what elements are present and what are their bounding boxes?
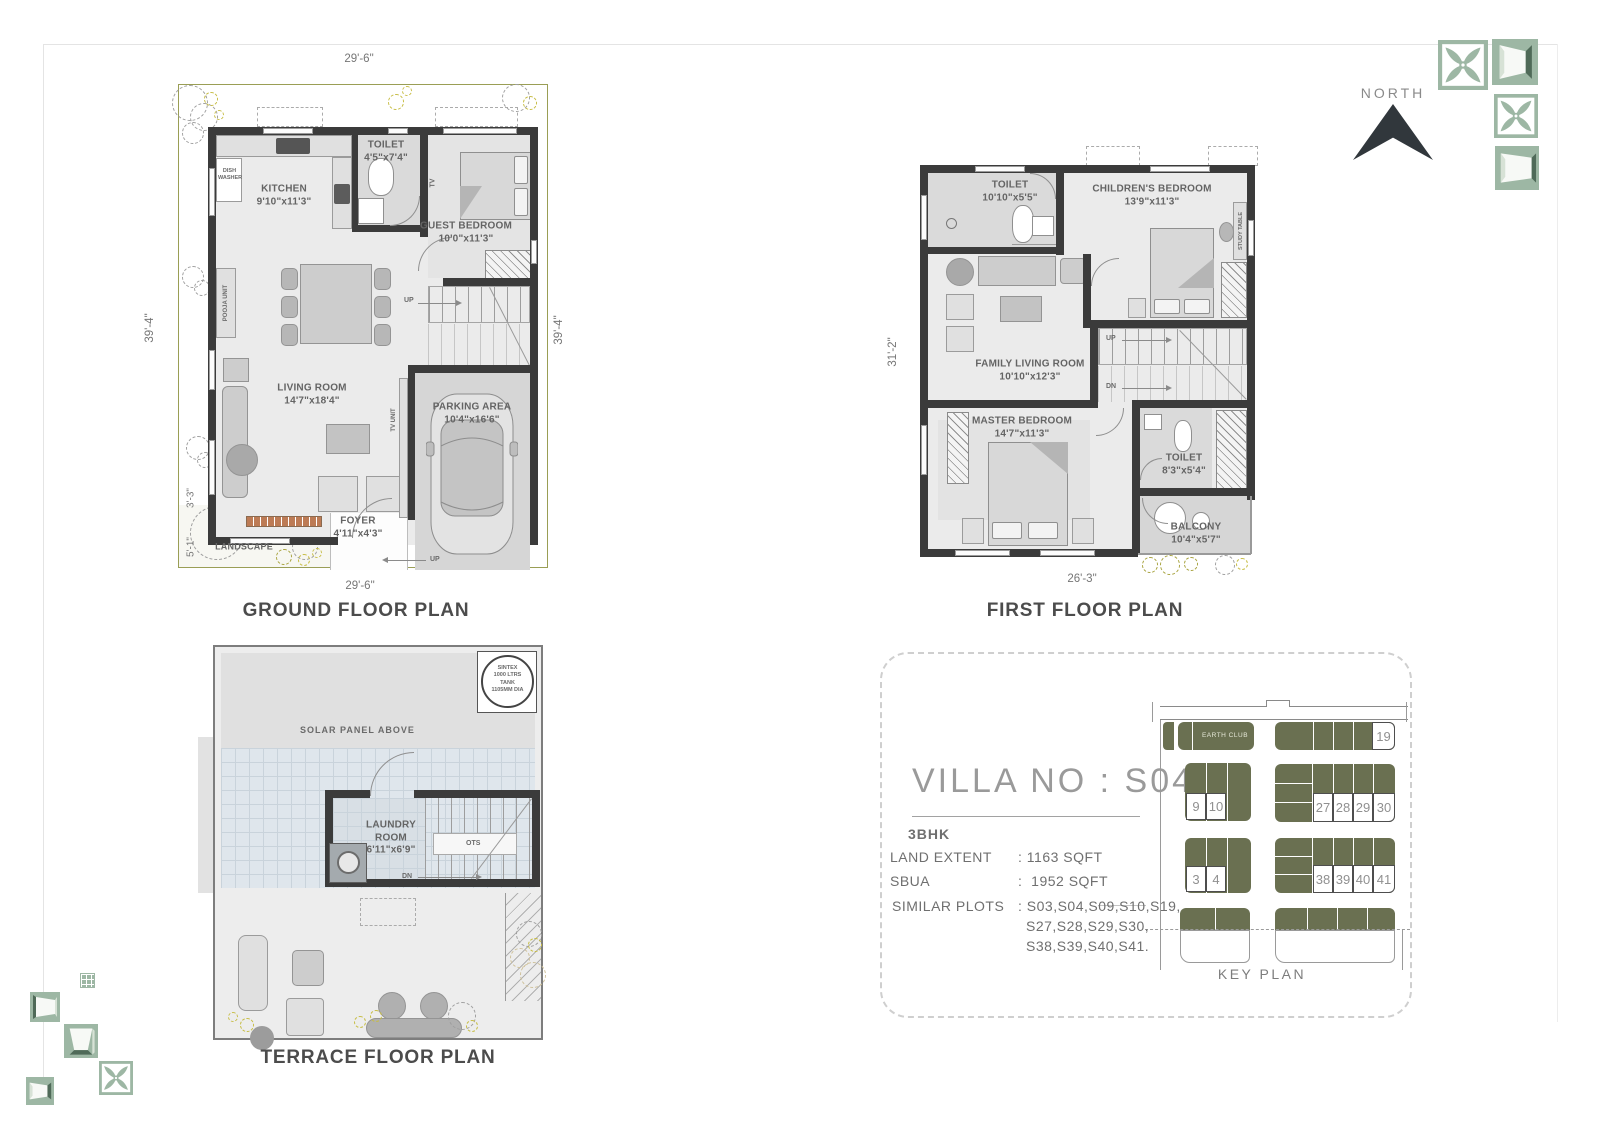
plot-divider xyxy=(1313,722,1314,750)
plot-divider xyxy=(1373,764,1374,793)
window xyxy=(1040,550,1095,556)
room-name: LIVING ROOM xyxy=(277,383,346,396)
dimension: 31'-2" xyxy=(887,337,899,366)
plot-divider xyxy=(1227,838,1228,893)
plot-divider xyxy=(1307,908,1308,930)
stairs xyxy=(428,286,530,323)
ground-floor-title: GROUND FLOOR PLAN xyxy=(243,600,470,622)
room-size: 6'11"x6'9" xyxy=(366,844,416,857)
washbasin xyxy=(1032,216,1054,236)
stairs xyxy=(1098,328,1247,365)
dn-label: DN xyxy=(1106,383,1116,390)
plot-divider xyxy=(1275,856,1312,857)
plot-block: 38 39 40 41 xyxy=(1275,838,1395,893)
earth-club-block: EARTH CLUB xyxy=(1178,722,1254,750)
projection-dashed xyxy=(1086,146,1140,166)
wall xyxy=(1247,165,1255,500)
plot-number: 19 xyxy=(1372,722,1395,750)
label-text: LANDSCAPE xyxy=(215,541,273,552)
tree-icon xyxy=(370,1010,382,1022)
plot-block: 27 28 29 30 xyxy=(1275,764,1395,822)
side-table xyxy=(292,950,324,986)
breeze-block-icon xyxy=(1438,40,1488,90)
land-extent-value: : 1163 SQFT xyxy=(1018,849,1103,865)
sbua-value: : 1952 SQFT xyxy=(1018,873,1108,889)
projection-dashed xyxy=(257,107,323,127)
block-3d-icon xyxy=(1495,144,1539,192)
up-arrow xyxy=(418,303,456,304)
arrowhead-icon xyxy=(476,874,482,880)
sbua-label: SBUA xyxy=(890,873,930,889)
road xyxy=(1160,706,1408,720)
pillow xyxy=(1184,299,1210,314)
wall xyxy=(1132,400,1255,408)
stairs-dashed xyxy=(1098,366,1247,402)
shadow-strip xyxy=(198,737,213,893)
projection-dashed xyxy=(360,898,416,926)
sofa xyxy=(978,256,1056,286)
page-edge-top xyxy=(43,44,1557,45)
window xyxy=(209,168,215,216)
sink xyxy=(276,138,310,154)
tree-icon xyxy=(388,94,404,110)
tv-unit-label: TV UNIT xyxy=(391,408,397,431)
washbasin xyxy=(1144,414,1162,430)
room-name: TOILET xyxy=(982,180,1037,193)
room-size: 9'10"x11'3" xyxy=(257,196,312,209)
room-name: GUEST BEDROOM xyxy=(420,221,512,234)
arrowhead-icon xyxy=(1166,337,1172,343)
room-name: TOILET xyxy=(1162,453,1206,466)
plot-number: 41 xyxy=(1373,865,1395,893)
pillow xyxy=(1028,522,1058,539)
side-table xyxy=(1128,298,1146,318)
villa-type: 3BHK xyxy=(908,826,950,842)
armchair xyxy=(286,998,324,1036)
room-name: BALCONY xyxy=(1171,522,1222,535)
room-size: 13'9"x11'3" xyxy=(1092,196,1211,209)
chair xyxy=(281,324,298,346)
window xyxy=(531,240,537,264)
armchair xyxy=(946,326,974,352)
wc xyxy=(1174,420,1192,452)
dn-label: DN xyxy=(402,873,412,880)
wall xyxy=(408,365,538,373)
outline-block xyxy=(1275,930,1395,963)
side-table xyxy=(223,358,249,382)
window xyxy=(921,425,927,475)
room-size: 14'7"x18'4" xyxy=(277,395,346,408)
shower-icon xyxy=(946,218,957,229)
wall xyxy=(1132,408,1140,553)
plot-number: 10 xyxy=(1206,793,1226,820)
balcony-edge xyxy=(1138,553,1251,555)
room-name: FOYER xyxy=(333,516,382,529)
plot-number: 40 xyxy=(1353,865,1373,893)
north-arrow-icon xyxy=(1353,104,1433,160)
chair xyxy=(1219,222,1234,242)
window xyxy=(443,128,517,134)
up-label: UP xyxy=(1106,335,1116,342)
dining-table xyxy=(300,264,372,344)
tree-icon xyxy=(1236,558,1248,570)
block-3d-icon xyxy=(1492,36,1538,88)
stairs-dashed xyxy=(428,324,530,365)
grid-icon xyxy=(80,973,95,988)
plot-divider xyxy=(1353,764,1354,793)
dimension: 26'-3" xyxy=(1067,573,1096,585)
plot-block: 3 4 xyxy=(1185,838,1251,893)
block-3d-icon xyxy=(24,1077,56,1105)
chair xyxy=(281,268,298,290)
dimension: 39'-4" xyxy=(553,315,565,344)
plot-number: 4 xyxy=(1206,866,1226,892)
dimension: 29'-6" xyxy=(345,580,374,592)
tree-icon xyxy=(276,549,292,565)
wall xyxy=(352,127,358,232)
tree-icon xyxy=(204,92,218,106)
wall xyxy=(414,790,540,798)
tree-icon xyxy=(214,110,224,120)
tree-icon xyxy=(312,548,322,558)
wall xyxy=(352,225,428,232)
page-edge-right xyxy=(1557,44,1558,1022)
arrowhead-icon xyxy=(1166,385,1172,391)
terrace-floor-title: TERRACE FLOOR PLAN xyxy=(260,1047,495,1069)
wardrobe xyxy=(947,412,969,484)
tank-line: 1000 LTRS xyxy=(484,672,531,679)
plot-divider xyxy=(1275,802,1312,803)
room-size: 10'4"x5'7" xyxy=(1171,534,1222,547)
room-name: FAMILY LIVING ROOM xyxy=(975,359,1084,372)
coffee-table xyxy=(326,424,370,454)
up-label: UP xyxy=(430,556,440,563)
side-table xyxy=(962,518,984,544)
title-underline xyxy=(912,816,1140,817)
wall xyxy=(1090,320,1247,328)
block-3d-icon xyxy=(63,1024,99,1058)
wall xyxy=(443,278,538,286)
tree-icon xyxy=(228,1012,238,1022)
plot-number: 38 xyxy=(1313,865,1333,893)
tree-icon xyxy=(1215,555,1235,575)
shaft xyxy=(1216,410,1247,490)
room-name: CHILDREN'S BEDROOM xyxy=(1092,184,1211,197)
room-label-balcony: BALCONY 10'4"x5'7" xyxy=(1171,522,1222,547)
dn-arrow xyxy=(1122,388,1166,389)
room-size: 8'3"x5'4" xyxy=(1162,465,1206,478)
plot-number: 3 xyxy=(1186,866,1206,892)
hob xyxy=(334,184,350,204)
chair xyxy=(374,324,391,346)
plot-block: 19 xyxy=(1275,722,1395,750)
solar-label: SOLAR PANEL ABOVE xyxy=(300,725,415,735)
tree-icon xyxy=(402,86,412,96)
villa-number-title: VILLA NO : S04 xyxy=(912,762,1194,801)
study-table-label: STUDY TABLE xyxy=(1238,212,1244,250)
tree-icon xyxy=(528,938,542,952)
tree-icon xyxy=(240,1018,254,1032)
tree-icon xyxy=(1142,557,1158,573)
room-name: LAUNDRY xyxy=(366,819,416,832)
plot-divider xyxy=(1373,838,1374,865)
plot-divider xyxy=(1275,874,1312,875)
room-size: 10'4"x16'6" xyxy=(433,414,512,427)
breeze-block-icon xyxy=(98,1061,134,1095)
tree-icon xyxy=(1160,555,1180,575)
wall xyxy=(408,373,415,520)
room-label-toilet-top: TOILET 10'10"x5'5" xyxy=(982,180,1037,205)
wall xyxy=(530,373,538,545)
page-edge-left xyxy=(43,44,44,1102)
tree-icon xyxy=(466,1020,478,1032)
room-size: 10'0"x11'3" xyxy=(420,233,512,246)
plot-number: 27 xyxy=(1313,793,1333,822)
room-size: 14'7"x11'3" xyxy=(972,428,1072,441)
dimension: 39'-4" xyxy=(144,313,156,342)
room-label-childrens-bedroom: CHILDREN'S BEDROOM 13'9"x11'3" xyxy=(1092,184,1211,209)
plot-number: 39 xyxy=(1333,865,1353,893)
armchair xyxy=(946,294,974,320)
room-name: PARKING AREA xyxy=(433,402,512,415)
plot-divider xyxy=(1367,908,1368,930)
plot-divider xyxy=(1227,763,1228,821)
stool xyxy=(420,992,448,1020)
plot-divider xyxy=(1275,783,1312,784)
pooja-label: POOJA UNIT xyxy=(223,285,229,321)
site-boundary xyxy=(1402,930,1403,970)
pouf xyxy=(226,444,258,476)
coffee-table xyxy=(1000,296,1042,322)
arrowhead-icon xyxy=(382,557,388,563)
ots-label: OTS xyxy=(466,840,480,847)
tree-icon xyxy=(1184,557,1198,571)
projection-dashed xyxy=(1208,146,1258,166)
pillow xyxy=(514,156,528,184)
plot-divider xyxy=(1215,908,1216,930)
room-label-toilet-bottom: TOILET 8'3"x5'4" xyxy=(1162,453,1206,478)
site-boundary xyxy=(1160,720,1161,970)
wall xyxy=(928,247,1064,254)
dn-arrow xyxy=(418,877,476,878)
tree-icon xyxy=(298,554,310,566)
room-label-master-bedroom: MASTER BEDROOM 14'7"x11'3" xyxy=(972,416,1072,441)
armchair xyxy=(318,476,358,512)
tank-line: SINTEX xyxy=(484,665,531,672)
dish-washer-label: DISH WASHER xyxy=(218,168,241,182)
arrowhead-icon xyxy=(456,300,462,306)
window xyxy=(1150,166,1210,172)
window xyxy=(1248,220,1254,256)
wall xyxy=(1056,165,1064,255)
land-extent-label: LAND EXTENT xyxy=(890,849,992,865)
room-size: 4'11"x4'3" xyxy=(333,528,382,541)
window xyxy=(921,195,927,240)
plot-number: 28 xyxy=(1333,793,1353,822)
shower-tray xyxy=(358,198,384,224)
side-table xyxy=(1072,518,1094,544)
plot-number: 30 xyxy=(1373,793,1395,822)
room-name: TOILET xyxy=(364,140,408,153)
window xyxy=(955,550,1010,556)
room-size: 10'10"x5'5" xyxy=(982,192,1037,205)
chair xyxy=(374,268,391,290)
earth-club-label: EARTH CLUB xyxy=(1196,732,1254,739)
up-label: UP xyxy=(404,297,414,304)
room-name: ROOM xyxy=(366,832,416,845)
room-name: KITCHEN xyxy=(257,184,312,197)
plot-divider xyxy=(1353,722,1354,750)
chair xyxy=(281,296,298,318)
pillow xyxy=(992,522,1022,539)
room-name: MASTER BEDROOM xyxy=(972,416,1072,429)
breeze-block-icon xyxy=(1494,92,1538,140)
road-tick xyxy=(1406,702,1407,722)
plot-block xyxy=(1163,722,1174,750)
similar-plots-value: S27,S28,S29,S30, xyxy=(1026,918,1149,934)
round-table xyxy=(946,258,974,286)
room-label-parking: PARKING AREA 10'4"x16'6" xyxy=(433,402,512,427)
tree-icon xyxy=(182,122,204,144)
first-floor-title: FIRST FLOOR PLAN xyxy=(987,600,1183,622)
lounger xyxy=(238,935,268,1011)
wc xyxy=(1012,205,1034,243)
wall xyxy=(928,400,1098,408)
north-label: NORTH xyxy=(1361,85,1426,101)
floorplan-sheet: UP DISH WASHER POOJA UNIT TV UNIT xyxy=(0,0,1600,1139)
tank-line: TANK xyxy=(484,680,531,687)
plot-number: 9 xyxy=(1186,793,1206,820)
room-label-foyer: FOYER 4'11"x4'3" xyxy=(333,516,382,541)
up-arrow xyxy=(388,560,426,561)
plot-divider xyxy=(1192,722,1193,750)
dimension: 3'-3" xyxy=(186,488,197,508)
wardrobe xyxy=(1221,262,1247,318)
pillow xyxy=(1154,299,1180,314)
tv-unit xyxy=(399,378,408,518)
up-arrow xyxy=(1122,340,1166,341)
wall xyxy=(920,549,1138,557)
tv-label: TV xyxy=(430,179,437,188)
wall xyxy=(532,790,540,887)
laundry-label: LAUNDRY ROOM 6'11"x6'9" xyxy=(366,819,416,857)
counter-line xyxy=(1012,244,1056,245)
similar-plots-label: SIMILAR PLOTS xyxy=(892,898,1004,914)
room-size: 4'5"x7'4" xyxy=(364,152,408,165)
room-label-kitchen: KITCHEN 9'10"x11'3" xyxy=(257,184,312,209)
room-label-guest-bedroom: GUEST BEDROOM 10'0"x11'3" xyxy=(420,221,512,246)
window xyxy=(975,166,1025,172)
plot-block xyxy=(1275,908,1395,930)
block-3d-icon xyxy=(29,992,61,1022)
wall xyxy=(1083,254,1091,328)
tree-icon xyxy=(520,962,546,988)
wall xyxy=(1140,488,1250,496)
balcony-edge xyxy=(1250,496,1252,554)
room-label-living-room: LIVING ROOM 14'7"x18'4" xyxy=(277,383,346,408)
stool xyxy=(378,992,406,1020)
plot-number: 29 xyxy=(1353,793,1373,822)
entry-mat xyxy=(246,516,322,527)
plot-divider xyxy=(1333,764,1334,793)
window xyxy=(209,440,215,495)
tank-label: SINTEX 1000 LTRS TANK 1105MM DIA xyxy=(484,665,531,695)
window xyxy=(263,128,313,134)
tree-icon xyxy=(523,96,537,110)
projection-dashed xyxy=(435,107,518,127)
window xyxy=(388,128,408,134)
room-label-family-living: FAMILY LIVING ROOM 10'10"x12'3" xyxy=(975,359,1084,384)
dimension: 29'-6" xyxy=(344,53,373,65)
room-size: 10'10"x12'3" xyxy=(975,371,1084,384)
key-plan-label: KEY PLAN xyxy=(1218,966,1306,982)
bench xyxy=(366,1018,462,1038)
window xyxy=(209,350,215,390)
similar-plots-value: S38,S39,S40,S41. xyxy=(1026,938,1149,954)
road-tick xyxy=(1152,702,1153,722)
landscape-label: LANDSCAPE xyxy=(215,541,273,552)
plot-divider xyxy=(1353,838,1354,865)
road-notch xyxy=(1266,700,1290,707)
washer-drum xyxy=(337,851,360,874)
wall xyxy=(1090,328,1098,408)
similar-plots-value: : S03,S04,S09,S10,S19, xyxy=(1018,898,1181,914)
outline-block xyxy=(1180,930,1250,963)
dimension: 5'-1" xyxy=(186,537,197,557)
plot-divider xyxy=(1333,838,1334,865)
plot-divider xyxy=(1333,722,1334,750)
chair xyxy=(374,296,391,318)
plot-block xyxy=(1180,908,1250,930)
room-label-toilet: TOILET 4'5"x7'4" xyxy=(364,140,408,165)
plot-divider xyxy=(1337,908,1338,930)
tree-icon xyxy=(354,1016,366,1028)
tank-line: 1105MM DIA xyxy=(484,687,531,694)
plot-block: 9 10 xyxy=(1185,763,1251,821)
pillow xyxy=(514,188,528,216)
sofa xyxy=(222,386,248,498)
